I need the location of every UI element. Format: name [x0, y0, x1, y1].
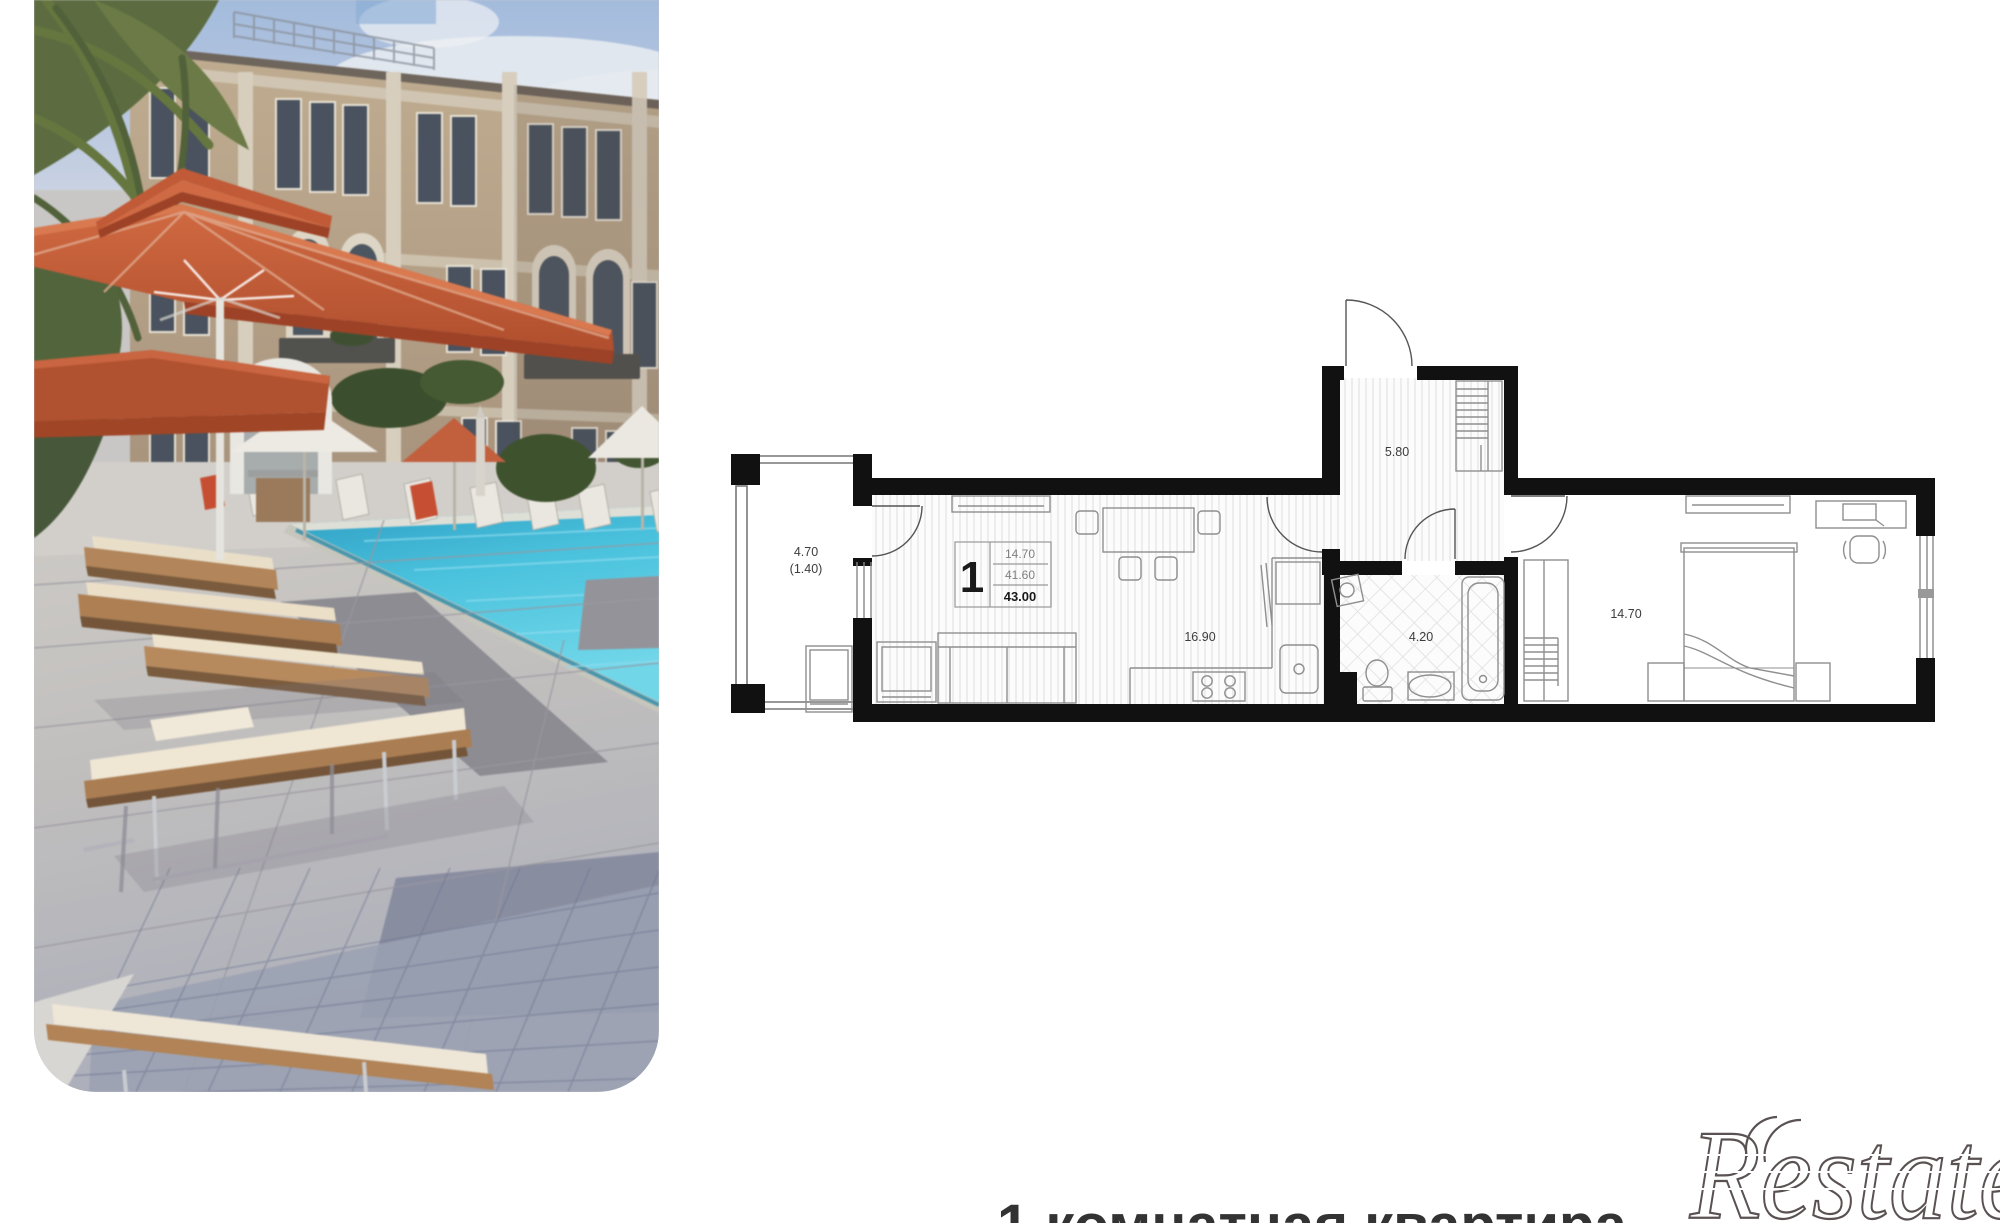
- svg-text:14.70: 14.70: [1610, 607, 1641, 621]
- svg-text:16.90: 16.90: [1184, 630, 1215, 644]
- svg-text:41.60: 41.60: [1005, 568, 1035, 582]
- svg-text:4.20: 4.20: [1409, 630, 1433, 644]
- svg-text:5.80: 5.80: [1385, 445, 1409, 459]
- svg-text:43.00: 43.00: [1004, 589, 1037, 604]
- svg-text:14.70: 14.70: [1005, 547, 1035, 561]
- svg-text:4.70: 4.70: [794, 545, 818, 559]
- svg-text:1: 1: [960, 553, 984, 602]
- svg-text:Restate: Restate: [1689, 1104, 2000, 1223]
- svg-text:(1.40): (1.40): [790, 562, 823, 576]
